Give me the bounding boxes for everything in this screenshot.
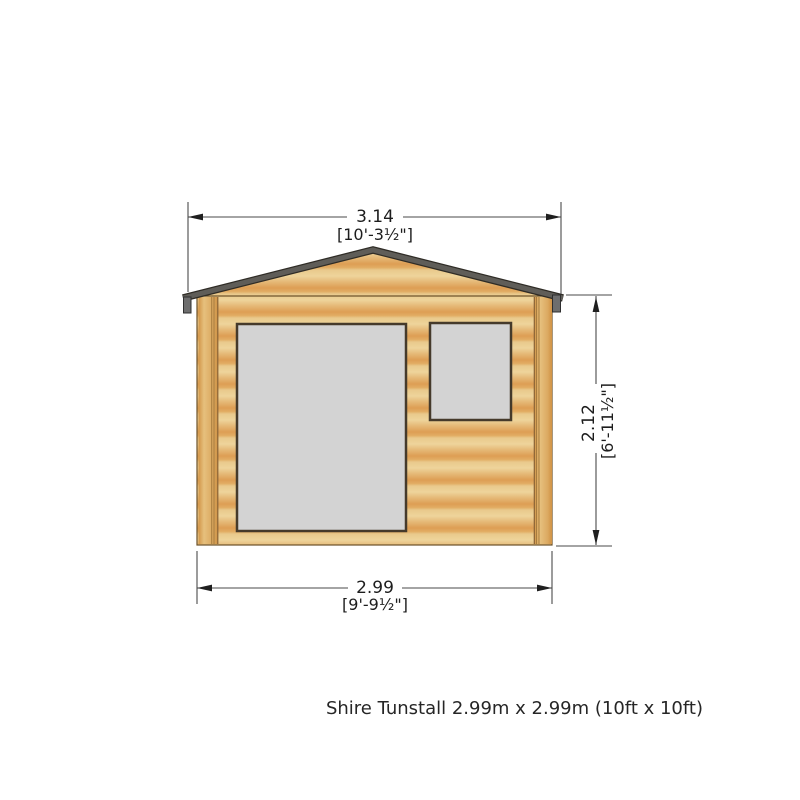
window [430,323,511,420]
dimension-metric-label: 3.14 [356,207,394,227]
door [237,324,406,531]
eave-bracket-right [553,295,561,312]
diagram-page: 3.14 [10'-3½"] 2.12 [6'-11½"] 2.99 [9'-9… [0,0,800,800]
cabin-front-elevation [183,250,563,545]
product-caption: Shire Tunstall 2.99m x 2.99m (10ft x 10f… [326,698,703,719]
dimension-imperial-label: [6'-11½"] [598,383,617,459]
dimension-imperial-label: [9'-9½"] [342,595,408,614]
corner-post-left [199,297,218,544]
eave-bracket-left [184,297,192,313]
dimension-metric-label: 2.12 [579,404,599,442]
elevation-diagram: 3.14 [10'-3½"] 2.12 [6'-11½"] 2.99 [9'-9… [0,0,800,800]
dimension-imperial-label: [10'-3½"] [337,225,413,244]
